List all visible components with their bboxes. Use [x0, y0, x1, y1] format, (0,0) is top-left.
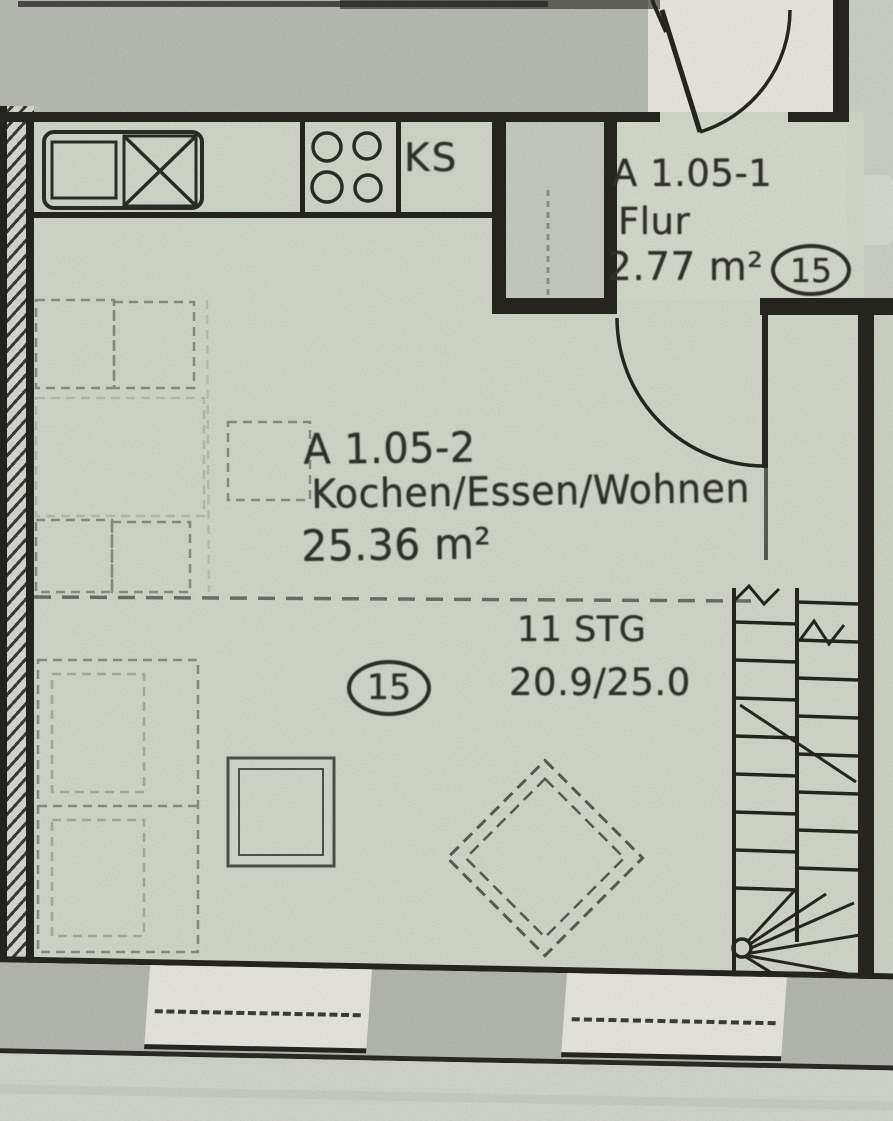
kitchen-counter-edge: [34, 212, 494, 218]
window-sill-line: [572, 1017, 776, 1025]
fridge-label: KS: [404, 136, 458, 181]
flur-room-code: A 1.05-1: [612, 152, 772, 195]
furniture-square: [112, 522, 190, 592]
shaft-wall-bottom: [492, 298, 617, 314]
wardrobe-inner: [52, 674, 144, 792]
window-opening: [144, 965, 372, 1053]
stove-burner: [355, 175, 381, 201]
flur-door-arc: [617, 318, 765, 466]
main-room-code: A 1.05-2: [303, 423, 476, 474]
furniture-square: [36, 300, 114, 388]
stove-burner: [313, 133, 341, 161]
window-sill-line: [155, 1009, 361, 1017]
flur-number-badge: 15: [771, 244, 851, 296]
furniture-square: [114, 302, 194, 388]
drainer-cross-icon: [124, 136, 196, 206]
top-edge-smudge: [340, 0, 660, 9]
entry-door-arc: [700, 10, 790, 132]
furniture-square: [36, 520, 112, 592]
stair-rise-run-label: 20.9/25.0: [509, 661, 691, 704]
bottom-wall-zone: [0, 956, 893, 1121]
furniture-faint-rect: [36, 398, 204, 516]
floor-plan: A 1.05-2 Kochen/Essen/Wohnen 25.36 m² A …: [0, 0, 893, 1121]
diamond-table: [447, 760, 642, 955]
side-table: [228, 758, 334, 866]
main-room-area: 25.36 m²: [301, 519, 492, 572]
wardrobe-inner: [52, 820, 144, 936]
counter-divider-2: [396, 120, 401, 212]
stove-burner: [312, 172, 342, 202]
entry-door-leaf: [662, 10, 700, 132]
sink-basin: [52, 142, 116, 198]
counter-divider-1: [300, 120, 305, 212]
stair-count-label: 11 STG: [517, 610, 646, 650]
stove-burner: [354, 133, 380, 159]
ceiling-break-line: [34, 597, 756, 601]
staircase: [733, 586, 860, 998]
main-room-name: Kochen/Essen/Wohnen: [311, 466, 750, 518]
flur-room-name: Flur: [618, 200, 690, 243]
right-exterior-wall: [858, 300, 874, 992]
side-table-inner: [239, 769, 323, 855]
main-badge-text: 15: [367, 668, 412, 708]
top-inner-wall-left: [0, 112, 660, 122]
window-opening: [561, 973, 787, 1061]
tables: [228, 758, 643, 956]
shaft-wall-left: [492, 112, 506, 314]
corridor-right-wall: [833, 0, 849, 122]
flur-badge-text: 15: [790, 251, 832, 290]
furniture-square: [228, 422, 310, 500]
zone-divider-line: [207, 300, 209, 592]
main-number-badge: 15: [347, 660, 431, 716]
flur-room-area: 2.77 m²: [607, 245, 763, 290]
